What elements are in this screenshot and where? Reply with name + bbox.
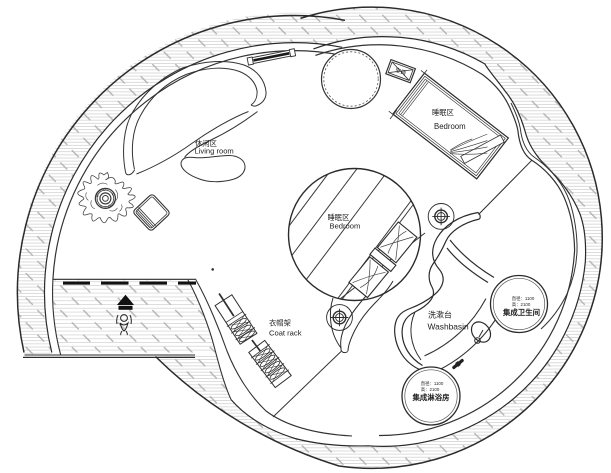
svg-text:Coat rack: Coat rack [269, 329, 302, 338]
svg-text:直径：1100: 直径：1100 [421, 380, 444, 386]
svg-text:直径：1100: 直径：1100 [512, 295, 535, 301]
svg-text:Bedroom: Bedroom [330, 222, 361, 231]
svg-text:衣帽架: 衣帽架 [269, 319, 291, 328]
svg-text:洗漱台: 洗漱台 [428, 310, 452, 320]
svg-text:集成淋浴房: 集成淋浴房 [412, 393, 450, 402]
svg-text:Washbasin: Washbasin [428, 322, 469, 332]
svg-text:集成卫生间: 集成卫生间 [502, 308, 540, 317]
svg-text:Bedroom: Bedroom [434, 122, 466, 131]
svg-text:高：2100: 高：2100 [512, 301, 531, 308]
svg-text:睡眠区: 睡眠区 [432, 108, 454, 117]
svg-text:Living room: Living room [195, 147, 234, 156]
svg-text:高：2100: 高：2100 [421, 386, 440, 393]
